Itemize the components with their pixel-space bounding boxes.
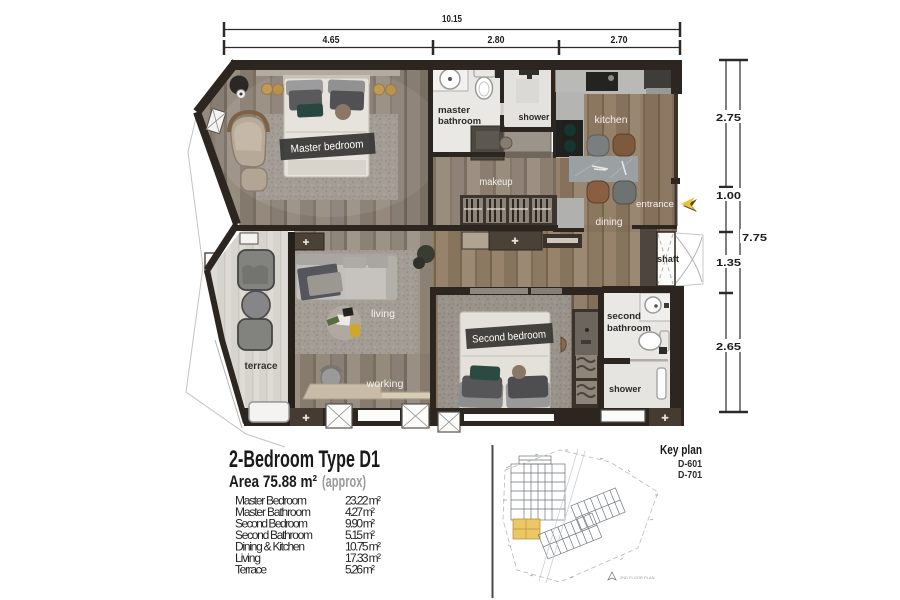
svg-text:✚: ✚: [302, 413, 310, 423]
svg-text:5.26 m²: 5.26 m²: [345, 563, 375, 577]
svg-text:✚: ✚: [511, 236, 519, 246]
svg-text:terrace: terrace: [245, 360, 278, 372]
svg-text:Terrace: Terrace: [235, 563, 267, 577]
svg-text:shower: shower: [609, 384, 641, 395]
svg-text:2.70: 2.70: [611, 35, 628, 46]
svg-text:D-701: D-701: [678, 469, 702, 481]
svg-text:shaft: shaft: [657, 254, 679, 264]
svg-text:entrance: entrance: [636, 199, 674, 210]
svg-text:4.65: 4.65: [323, 35, 340, 46]
svg-text:bathroom: bathroom: [438, 116, 481, 127]
svg-text:2ND FLOOR PLAN: 2ND FLOOR PLAN: [620, 575, 655, 580]
svg-text:Key plan: Key plan: [660, 443, 702, 457]
svg-text:living: living: [371, 309, 395, 320]
svg-text:kitchen: kitchen: [595, 115, 628, 126]
svg-text:2.65: 2.65: [716, 341, 741, 353]
svg-text:working: working: [365, 379, 403, 390]
svg-text:(approx): (approx): [322, 472, 366, 491]
svg-text:second: second: [607, 311, 641, 322]
svg-text:1.00: 1.00: [716, 190, 741, 202]
svg-text:dining: dining: [596, 217, 623, 228]
svg-text:1.35: 1.35: [716, 257, 741, 269]
svg-text:10.15: 10.15: [442, 14, 462, 25]
svg-text:Area 75.88 m²: Area 75.88 m²: [229, 472, 317, 491]
svg-text:7.75: 7.75: [742, 232, 767, 244]
svg-text:shower: shower: [519, 112, 550, 123]
svg-text:✚: ✚: [303, 238, 310, 247]
svg-text:bathroom: bathroom: [607, 323, 651, 334]
svg-text:2-Bedroom Type D1: 2-Bedroom Type D1: [229, 446, 380, 473]
svg-text:✚: ✚: [661, 413, 669, 423]
svg-text:2.75: 2.75: [716, 112, 741, 124]
svg-text:makeup: makeup: [480, 177, 513, 188]
svg-text:master: master: [438, 105, 470, 116]
svg-text:2.80: 2.80: [488, 35, 505, 46]
